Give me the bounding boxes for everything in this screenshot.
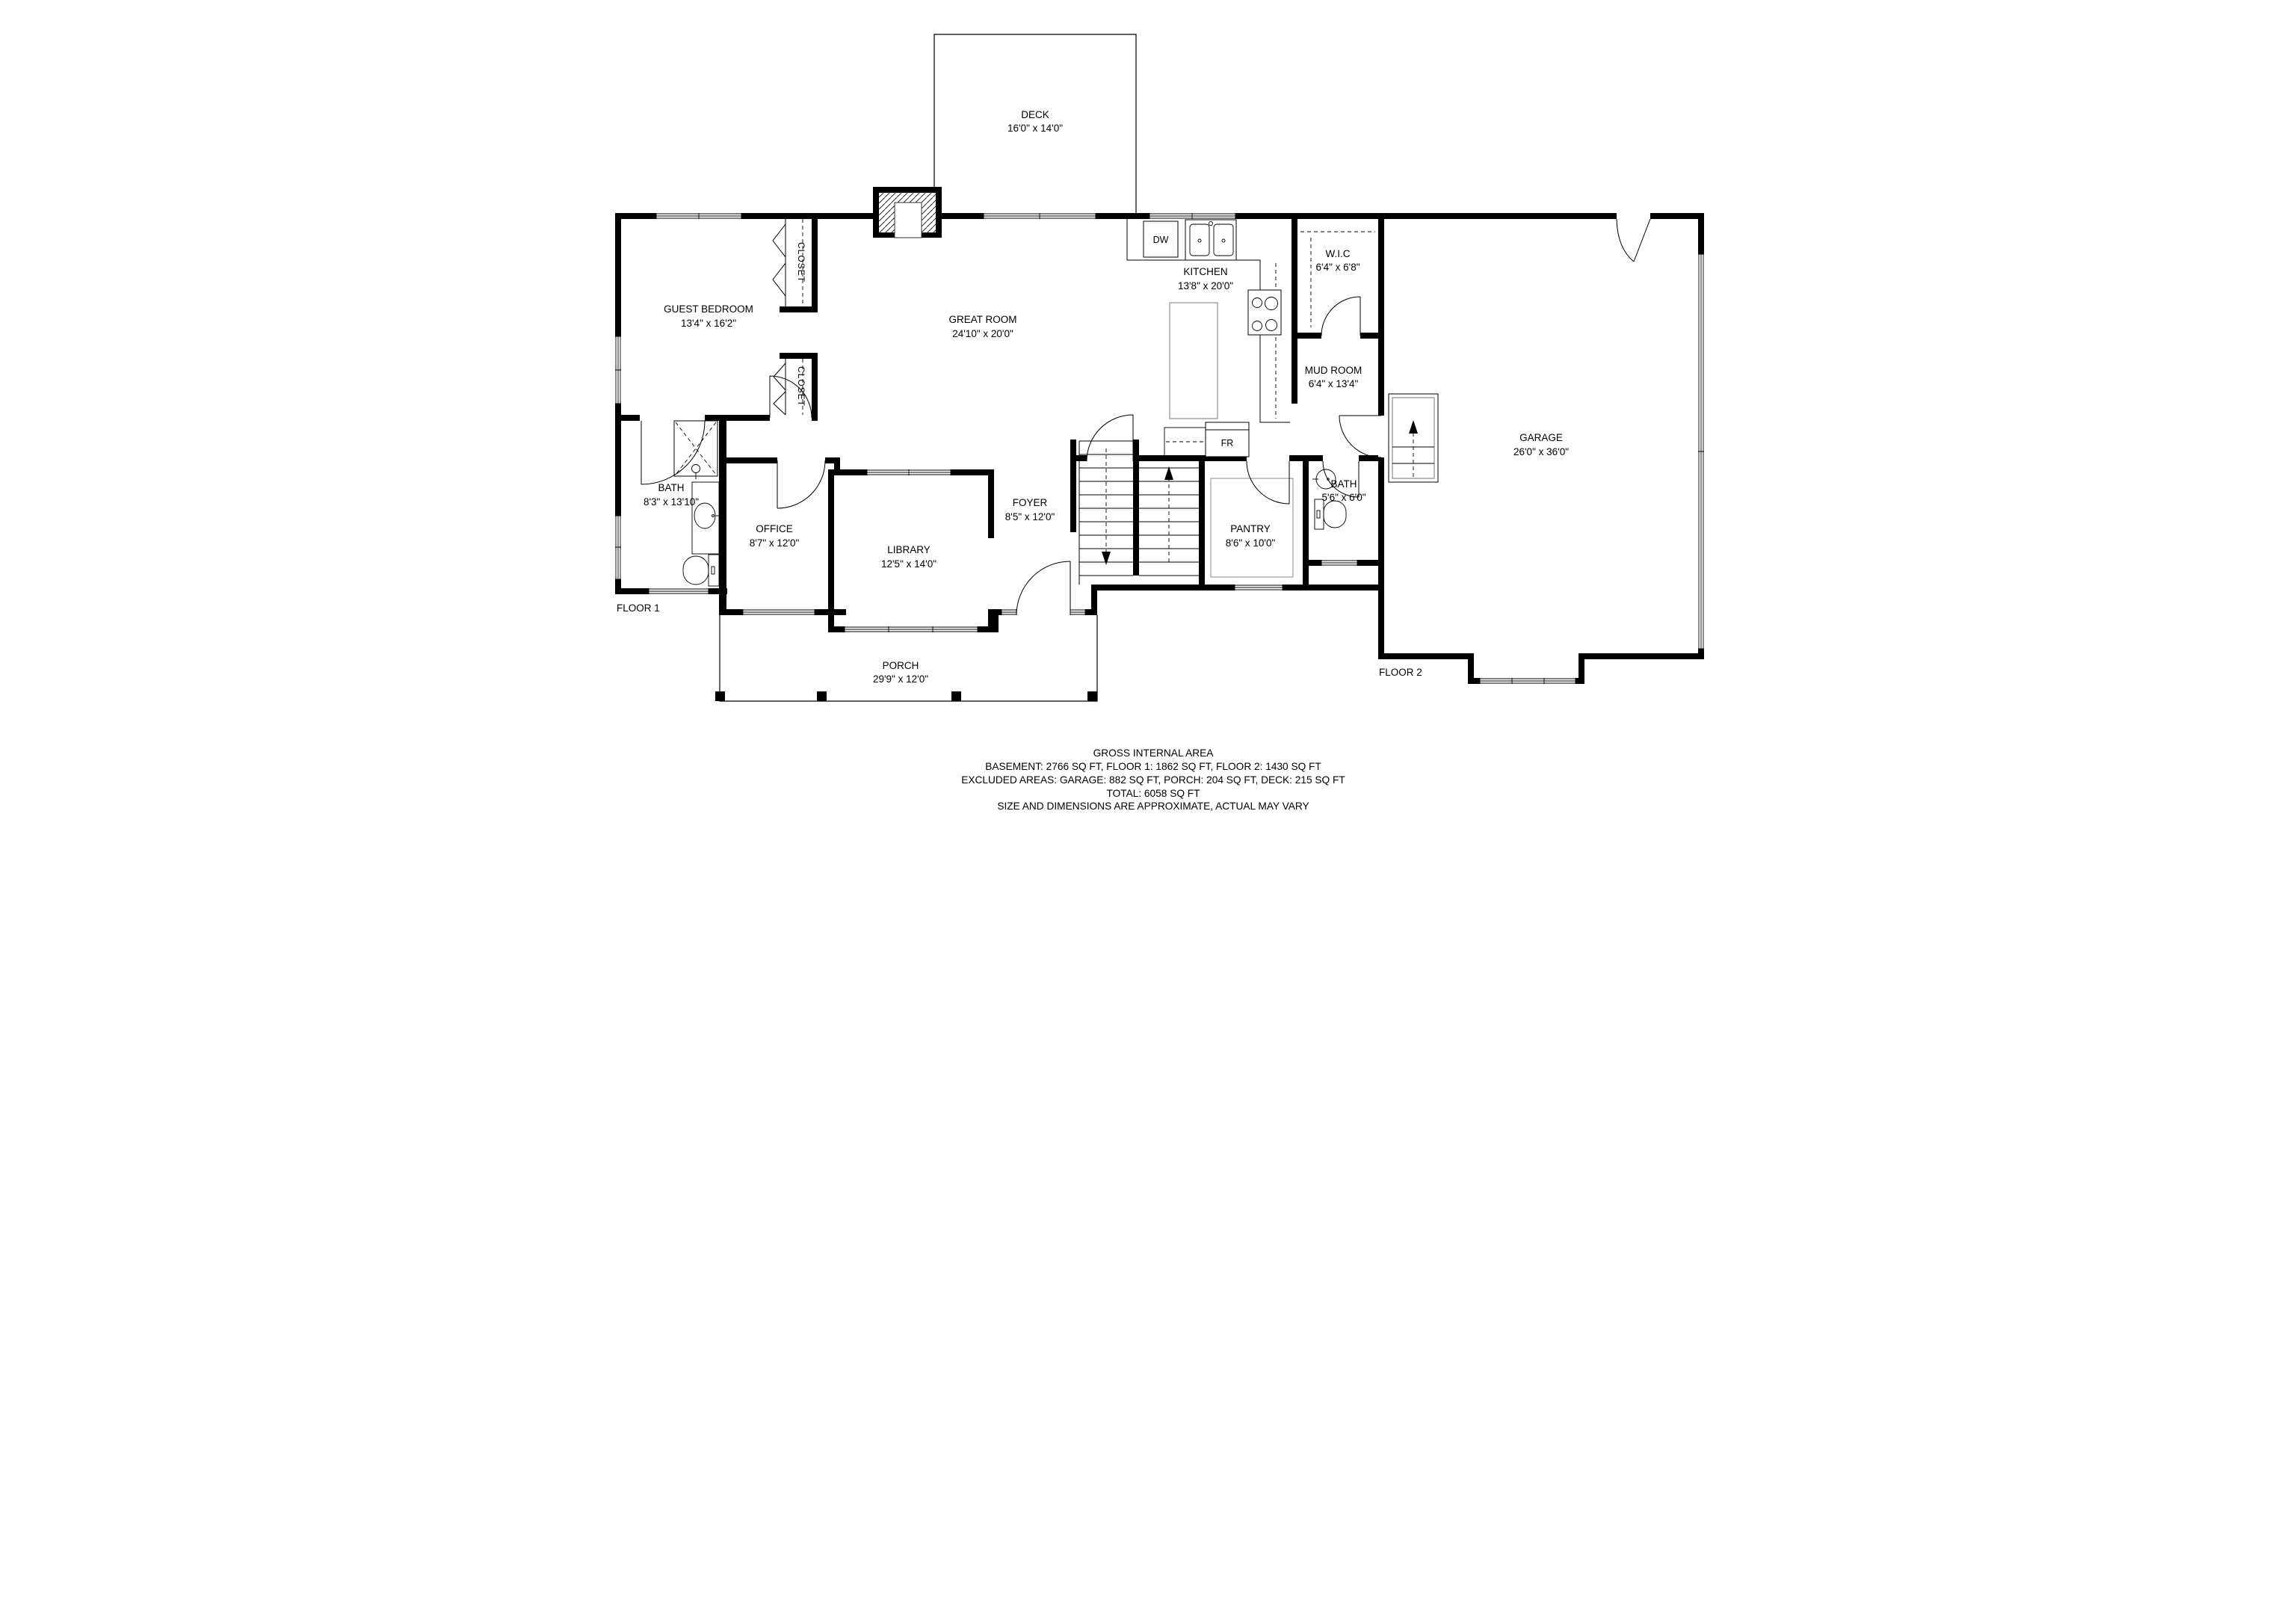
svg-text:29'9" x 12'0": 29'9" x 12'0" xyxy=(873,673,928,685)
floor1-label: FLOOR 1 xyxy=(617,602,660,614)
window xyxy=(1480,678,1576,684)
summary-disclaimer: SIZE AND DIMENSIONS ARE APPROXIMATE, ACT… xyxy=(997,801,1309,811)
svg-text:KITCHEN: KITCHEN xyxy=(1183,266,1227,277)
dishwasher-label: DW xyxy=(1153,235,1169,245)
svg-text:PORCH: PORCH xyxy=(883,660,919,671)
fridge-label: FR xyxy=(1221,438,1234,448)
dishwasher: DW xyxy=(1144,221,1178,257)
summary-total: TOTAL: 6058 SQ FT xyxy=(1106,788,1200,799)
background xyxy=(574,0,1722,811)
svg-text:BATH: BATH xyxy=(1330,478,1357,490)
svg-text:GREAT ROOM: GREAT ROOM xyxy=(948,314,1016,325)
window xyxy=(656,213,741,219)
kitchen-sink xyxy=(1185,220,1236,260)
window xyxy=(649,588,709,594)
svg-text:6'4" x 6'8": 6'4" x 6'8" xyxy=(1315,262,1360,273)
svg-text:8'3" x 13'10": 8'3" x 13'10" xyxy=(644,496,699,508)
window xyxy=(1235,585,1283,590)
window xyxy=(1149,213,1235,219)
svg-text:13'8" x 20'0": 13'8" x 20'0" xyxy=(1178,280,1233,292)
porch-column xyxy=(817,691,827,701)
svg-text:16'0" x 14'0": 16'0" x 14'0" xyxy=(1007,123,1063,134)
floor-plan-page: DW FR xyxy=(574,0,1722,811)
window xyxy=(743,609,815,615)
window xyxy=(1321,560,1357,566)
window xyxy=(615,516,621,579)
svg-text:GUEST BEDROOM: GUEST BEDROOM xyxy=(664,303,753,315)
window xyxy=(984,213,1096,219)
svg-text:5'6" x 6'0": 5'6" x 6'0" xyxy=(1321,492,1365,503)
floor2-label: FLOOR 2 xyxy=(1379,667,1422,678)
window xyxy=(1698,254,1704,649)
svg-text:8'6" x 10'0": 8'6" x 10'0" xyxy=(1226,537,1276,549)
fridge: FR xyxy=(1206,422,1249,457)
window xyxy=(867,469,951,475)
svg-text:6'4" x 13'4": 6'4" x 13'4" xyxy=(1309,378,1359,389)
porch-column xyxy=(951,691,961,701)
svg-text:PANTRY: PANTRY xyxy=(1230,523,1271,534)
svg-text:FOYER: FOYER xyxy=(1013,497,1048,508)
svg-text:LIBRARY: LIBRARY xyxy=(887,544,931,555)
window xyxy=(845,626,978,632)
fireplace xyxy=(873,187,942,238)
floor-plan-svg: DW FR xyxy=(574,0,1722,811)
svg-text:MUD ROOM: MUD ROOM xyxy=(1305,365,1363,376)
svg-text:W.I.C: W.I.C xyxy=(1326,248,1351,259)
svg-text:BATH: BATH xyxy=(658,482,684,493)
porch-column xyxy=(1087,691,1097,701)
svg-text:DECK: DECK xyxy=(1021,109,1049,120)
svg-text:GARAGE: GARAGE xyxy=(1519,432,1563,443)
svg-text:24'10" x 20'0": 24'10" x 20'0" xyxy=(952,328,1013,339)
closet-upper-label: CLOSET xyxy=(796,242,806,283)
stove xyxy=(1248,290,1281,335)
svg-text:8'7" x 12'0": 8'7" x 12'0" xyxy=(750,537,800,549)
summary-title: GROSS INTERNAL AREA xyxy=(1093,747,1215,759)
closet-lower-label: CLOSET xyxy=(796,366,806,407)
svg-text:26'0" x 36'0": 26'0" x 36'0" xyxy=(1513,446,1569,457)
front-door-assembly xyxy=(1002,609,1085,615)
svg-text:13'4" x 16'2": 13'4" x 16'2" xyxy=(681,318,736,329)
svg-text:OFFICE: OFFICE xyxy=(756,523,793,534)
window xyxy=(615,336,621,404)
summary-areas: BASEMENT: 2766 SQ FT, FLOOR 1: 1862 SQ F… xyxy=(985,761,1321,772)
summary-excluded: EXCLUDED AREAS: GARAGE: 882 SQ FT, PORCH… xyxy=(961,774,1345,786)
svg-text:12'5" x 14'0": 12'5" x 14'0" xyxy=(881,558,936,570)
svg-text:8'5" x 12'0": 8'5" x 12'0" xyxy=(1005,511,1055,522)
porch-column xyxy=(715,691,725,701)
